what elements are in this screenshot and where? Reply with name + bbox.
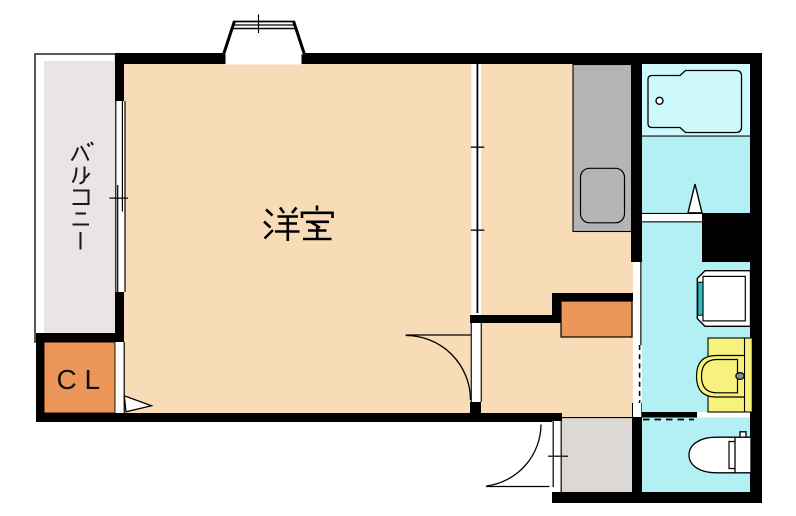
svg-text:C L: C L: [57, 364, 101, 395]
